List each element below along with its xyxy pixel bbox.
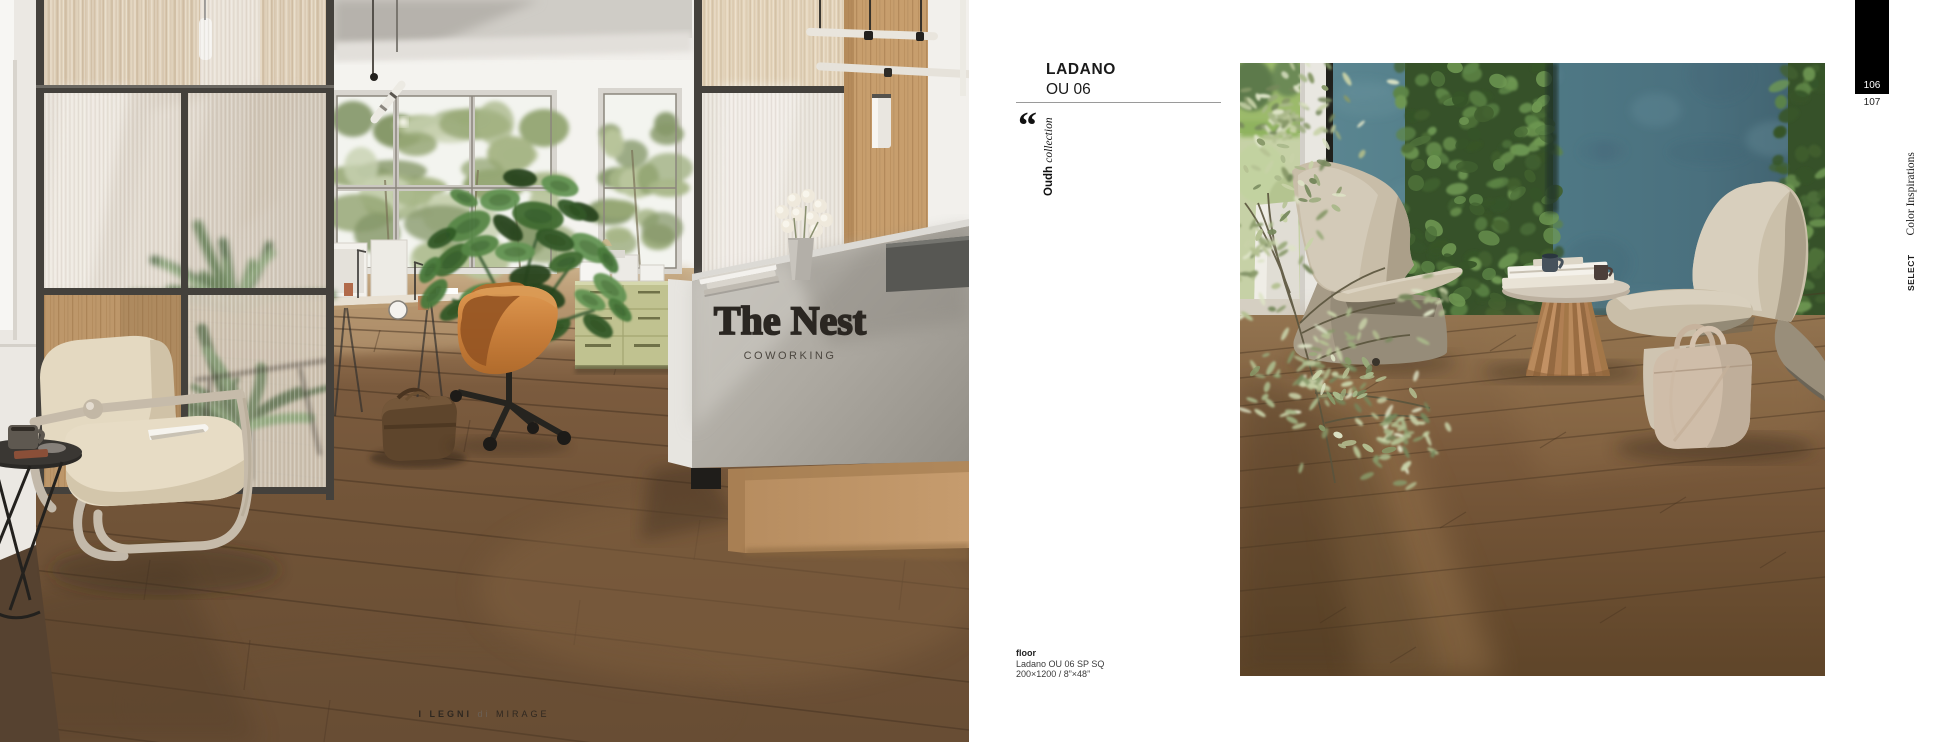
svg-text:The Nest: The Nest (714, 298, 867, 343)
svg-text:COWORKING: COWORKING (744, 350, 837, 362)
svg-text:I LEGNI di MIRAGE: I LEGNI di MIRAGE (418, 709, 549, 719)
